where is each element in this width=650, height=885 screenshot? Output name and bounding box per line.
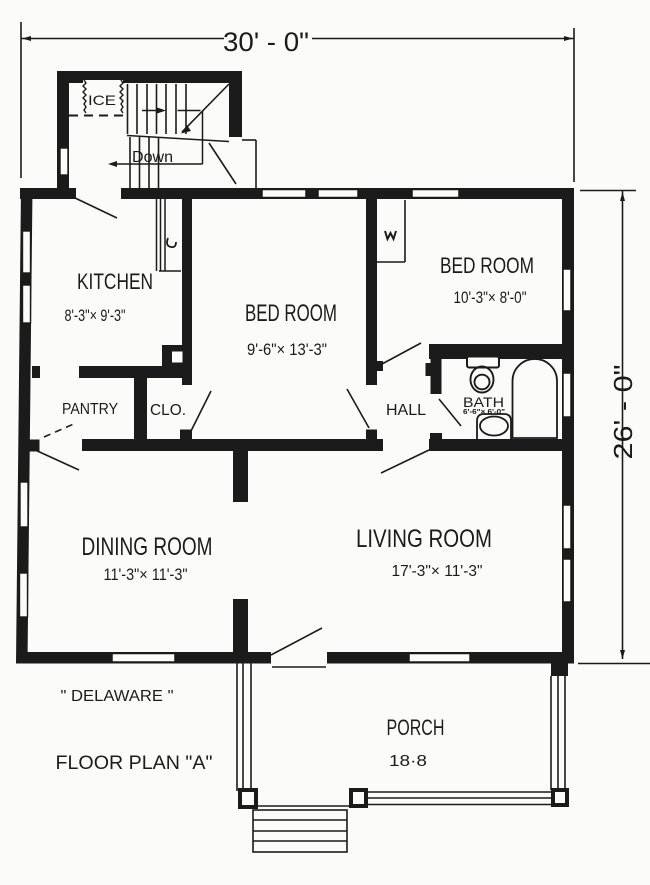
svg-text:26' - 0": 26' - 0" bbox=[608, 365, 638, 460]
svg-text:Down: Down bbox=[132, 149, 173, 166]
svg-text:DINING ROOM: DINING ROOM bbox=[82, 533, 213, 561]
svg-text:BATH: BATH bbox=[463, 394, 504, 410]
svg-text:PANTRY: PANTRY bbox=[62, 401, 118, 418]
svg-text:17'-3"× 11'-3": 17'-3"× 11'-3" bbox=[392, 563, 483, 580]
svg-text:FLOOR PLAN "A": FLOOR PLAN "A" bbox=[56, 753, 213, 774]
svg-text:" DELAWARE ": " DELAWARE " bbox=[61, 688, 174, 705]
svg-text:6'-6"× 6'-0": 6'-6"× 6'-0" bbox=[463, 409, 505, 416]
svg-text:18·8: 18·8 bbox=[389, 753, 427, 770]
svg-text:PORCH: PORCH bbox=[387, 715, 445, 740]
svg-text:9'-6"× 13'-3": 9'-6"× 13'-3" bbox=[247, 341, 327, 359]
svg-text:8'-3"× 9'-3": 8'-3"× 9'-3" bbox=[65, 307, 126, 325]
svg-text:11'-3"× 11'-3": 11'-3"× 11'-3" bbox=[104, 566, 188, 584]
svg-text:10'-3"× 8'-0": 10'-3"× 8'-0" bbox=[454, 289, 527, 307]
svg-text:HALL: HALL bbox=[386, 402, 426, 419]
svg-text:BED ROOM: BED ROOM bbox=[440, 253, 534, 278]
svg-text:CLO.: CLO. bbox=[150, 402, 186, 419]
svg-text:BED ROOM: BED ROOM bbox=[245, 300, 337, 327]
svg-text:ICE: ICE bbox=[88, 92, 116, 108]
svg-text:KITCHEN: KITCHEN bbox=[77, 269, 153, 294]
svg-text:LIVING ROOM: LIVING ROOM bbox=[356, 525, 492, 553]
svg-text:30' - 0": 30' - 0" bbox=[223, 27, 309, 57]
